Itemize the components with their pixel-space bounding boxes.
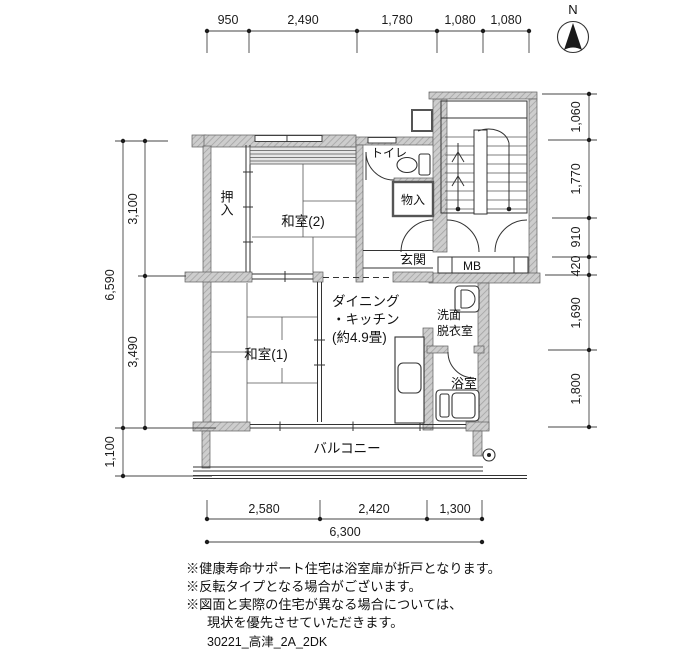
left-wall: [203, 146, 211, 430]
dim-right-3: 420: [569, 256, 583, 277]
note-line-2: ※反転タイプとなる場合がございます。: [186, 578, 422, 594]
washitsu2-window-2: [287, 136, 322, 142]
mb-bottom-wall: [429, 273, 540, 283]
north-needle: [564, 23, 582, 50]
room-label-mb: MB: [463, 259, 481, 273]
middle-window: [252, 271, 313, 282]
dim-left-lower: 3,490: [126, 336, 140, 367]
room-label-dk-1: ダイニング: [332, 294, 400, 309]
bath-senmen-wall-r: [474, 346, 484, 353]
washitsu2-window: [255, 136, 287, 142]
dimension-bottom: 2,580 2,420 1,300 6,300: [205, 500, 484, 544]
pipe-shaft-box: [412, 110, 432, 131]
dim-right-2: 910: [569, 227, 583, 248]
room-label-bath: 浴室: [451, 376, 477, 391]
kitchen-counter: [395, 337, 424, 423]
note-line-3: ※図面と実際の住宅が異なる場合については、: [186, 597, 462, 612]
middle-wall-pillar: [313, 272, 323, 282]
stair-divider: [474, 130, 487, 214]
middle-wall-right: [393, 272, 433, 282]
floor-plan-drawing: 押入 和室(2) トイレ 物入 玄関 MB ダイニング ・キッチン (約4.9畳…: [0, 0, 700, 650]
dim-right-4: 1,690: [569, 297, 583, 328]
middle-wall-left: [185, 272, 252, 282]
plan-id: 30221_高津_2A_2DK: [207, 634, 328, 649]
notes: ※健康寿命サポート住宅は浴室扉が折戸となります。 ※反転タイプとなる場合がござい…: [186, 560, 501, 630]
dim-left-total: 6,590: [103, 269, 117, 300]
bottom-wall-left: [193, 422, 250, 431]
room-label-genkan: 玄関: [400, 252, 426, 267]
entrance-door-arc: [401, 220, 433, 252]
bath-senmen-wall: [427, 346, 448, 353]
room-label-dk-2: ・キッチン: [332, 312, 400, 327]
room-label-dk-3: (約4.9畳): [332, 330, 387, 345]
dim-top-1: 2,490: [287, 13, 318, 27]
dimension-top: 950 2,490 1,780 1,080 1,080: [205, 13, 531, 53]
bath-door-arc: [448, 352, 474, 378]
north-label: N: [568, 2, 577, 17]
dim-top-2: 1,780: [381, 13, 412, 27]
room-label-washitsu2: 和室(2): [281, 213, 325, 229]
room-label-senmen-1: 洗面: [437, 308, 461, 322]
dim-bottom-0: 2,580: [248, 502, 279, 516]
dim-left-balcony: 1,100: [103, 436, 117, 467]
kitchen-sink: [398, 363, 421, 393]
dim-bottom-2: 1,300: [439, 502, 470, 516]
washitsu2-shelf-band: [250, 147, 356, 164]
dim-top-0: 950: [218, 13, 239, 27]
toilet-tank: [419, 154, 430, 175]
room-label-storage: 物入: [401, 193, 425, 207]
room-label-balcony: バルコニー: [313, 441, 380, 456]
balcony-window: [250, 422, 466, 432]
stair-top-wall: [429, 92, 537, 99]
dim-right-1: 1,770: [569, 163, 583, 194]
landing-door-right-arc: [495, 220, 527, 252]
washitsu1-dk-partition: [314, 282, 325, 422]
lower-right-wall: [478, 283, 489, 430]
note-line-1: ※健康寿命サポート住宅は浴室扉が折戸となります。: [186, 560, 501, 576]
dim-top-3: 1,080: [444, 13, 475, 27]
bottom-wall-right: [466, 422, 489, 431]
balcony-left-wall: [202, 431, 210, 468]
dim-right-0: 1,060: [569, 101, 583, 132]
dim-bottom-total: 6,300: [329, 525, 360, 539]
meter-box: [438, 257, 528, 273]
floor-plan-page: 押入 和室(2) トイレ 物入 玄関 MB ダイニング ・キッチン (約4.9畳…: [0, 0, 700, 650]
room-label-oshiire: 押入: [219, 190, 234, 216]
note-line-4: 現状を優先させていただきます。: [207, 615, 404, 630]
tatami-lines: [211, 147, 356, 422]
balcony-right-wall: [473, 431, 482, 456]
dim-left-upper: 3,100: [126, 193, 140, 224]
landing-door-left-arc: [447, 220, 479, 252]
dim-top-4: 1,080: [490, 13, 521, 27]
room-label-toilet: トイレ: [371, 146, 407, 160]
washitsu2-right-wall: [356, 145, 363, 282]
dim-right-5: 1,800: [569, 373, 583, 404]
stair-left-wall: [433, 99, 447, 252]
bathtub: [436, 390, 479, 421]
dimension-right: 1,060 1,770 910 420 1,690 1,800: [542, 92, 597, 429]
stair-right-wall: [529, 99, 537, 275]
toilet-window: [368, 138, 396, 144]
north-arrow: N: [558, 2, 589, 53]
dim-bottom-1: 2,420: [358, 502, 389, 516]
room-label-washitsu1: 和室(1): [244, 346, 288, 362]
room-label-senmen-2: 脱衣室: [437, 323, 473, 338]
